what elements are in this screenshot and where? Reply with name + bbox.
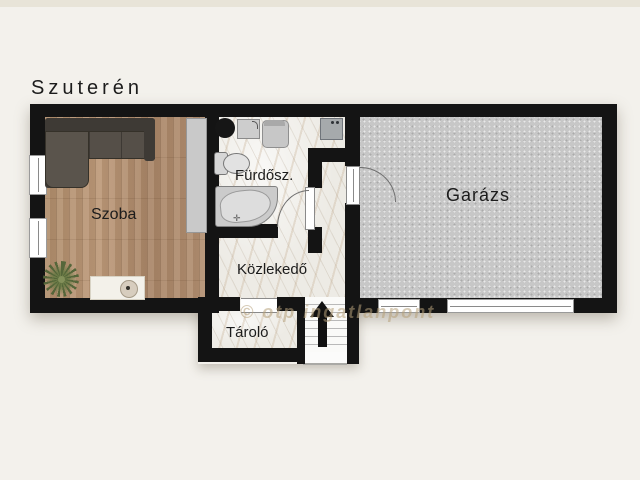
- wall-tarolo-bottom: [198, 348, 305, 362]
- room-label-garazs: Garázs: [446, 185, 510, 206]
- wall-garage-left-upper: [345, 104, 360, 166]
- window-pane: [38, 221, 39, 255]
- washer-knob: [336, 121, 339, 124]
- floor-level-title: Szuterén: [31, 77, 143, 100]
- room-garage-floor: [357, 114, 605, 300]
- wardrobe: [186, 118, 207, 233]
- wall-outer-right: [602, 104, 617, 313]
- wall-bathroom-right-upper: [308, 148, 322, 188]
- sofa-armrest: [144, 118, 155, 161]
- door-line: [353, 169, 354, 202]
- plant-pot: [58, 276, 65, 283]
- sofa-chaise: [45, 131, 89, 188]
- faucet-icon: [252, 121, 258, 129]
- wall-outer-top: [30, 104, 617, 117]
- garage-entry-door-leaf: [346, 166, 360, 205]
- room-label-furdoszoba: Fürdősz.: [235, 167, 293, 184]
- window-pane: [38, 158, 39, 192]
- pouf-center: [126, 286, 130, 290]
- bathtub-drain: ✛: [233, 214, 241, 223]
- washer-knob: [331, 121, 334, 124]
- room-label-tarolo: Tároló: [226, 324, 269, 341]
- room-label-szoba: Szoba: [91, 206, 136, 224]
- window-szoba-lower: [29, 218, 47, 258]
- wall-garage-left-lower: [345, 203, 360, 313]
- staircase-landing: [303, 352, 347, 365]
- round-basin: [215, 118, 235, 138]
- wall-outer-bottom-left: [30, 298, 213, 313]
- watermark: © otp ingatlanpont: [240, 302, 435, 323]
- chair-backrest: [264, 120, 285, 126]
- garage-door-opening: [447, 299, 574, 313]
- room-label-kozlekedo: Közlekedő: [237, 261, 307, 278]
- wall-bathroom-right-lower: [308, 227, 322, 253]
- top-border-strip: [0, 0, 640, 7]
- window-pane: [450, 306, 571, 307]
